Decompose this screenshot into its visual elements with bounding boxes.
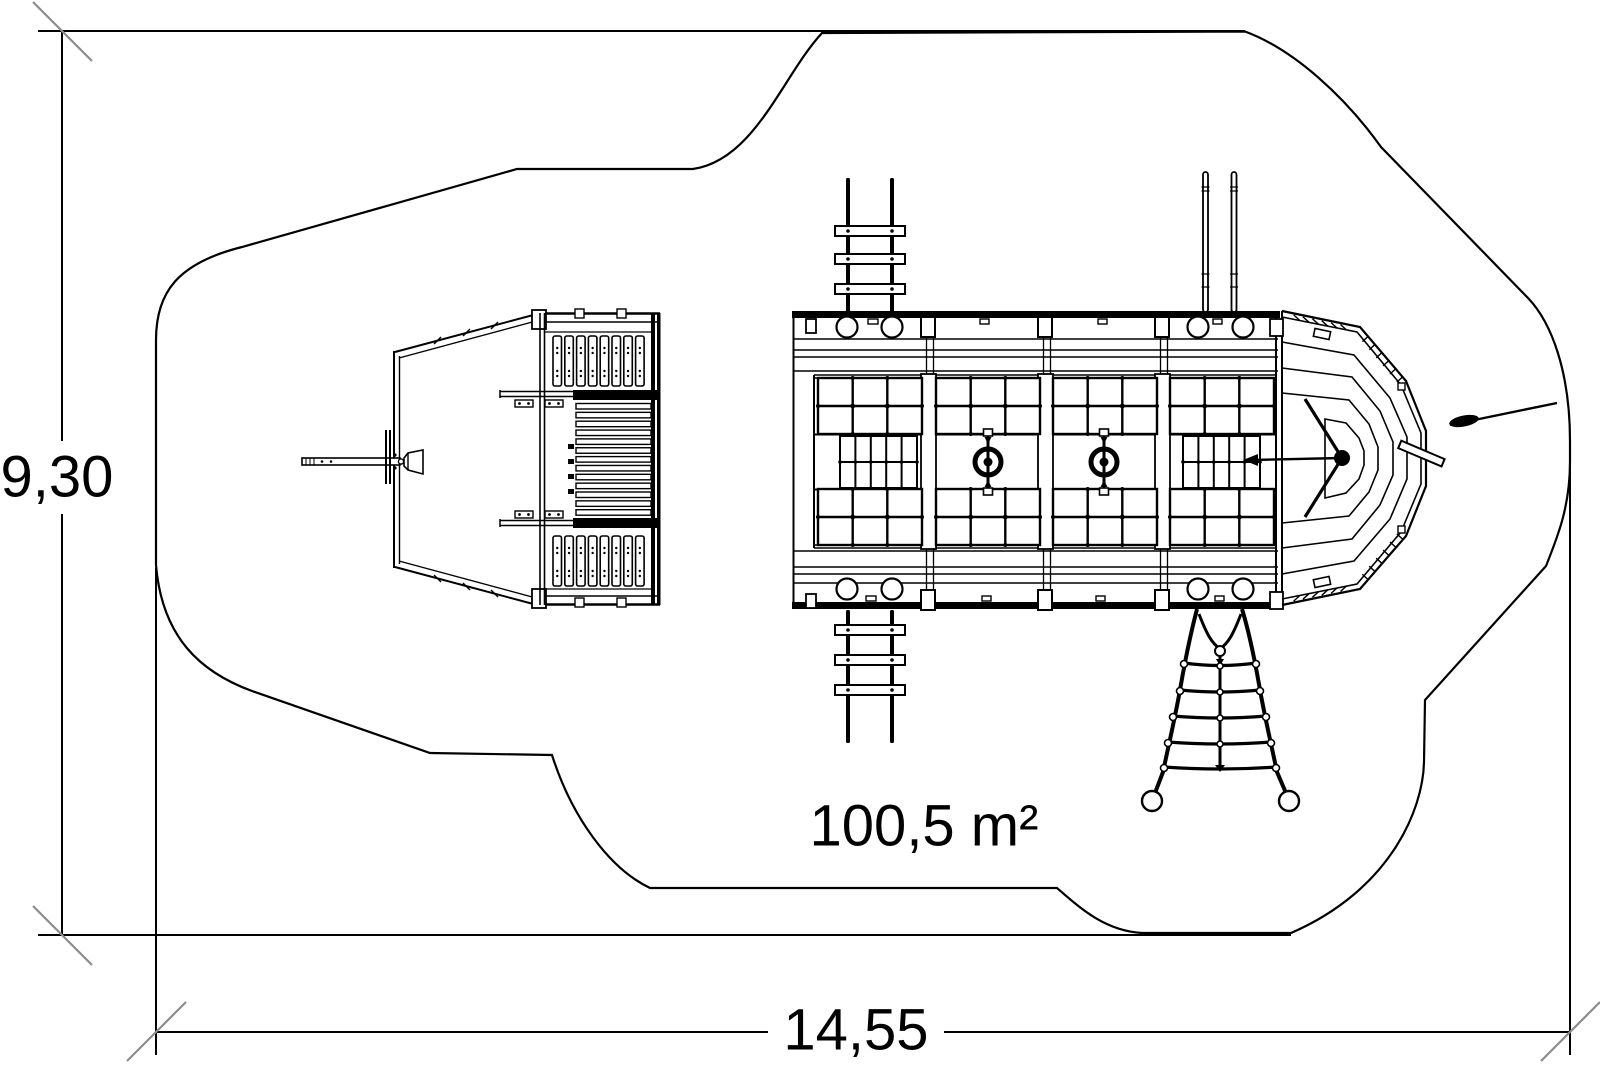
dimension-annotations: 9,30 14,55 100,5 m² (1, 2, 1600, 1063)
fore-deck (500, 390, 660, 528)
height-dimension-label: 9,30 (1, 445, 114, 510)
net-ground-anchor (1142, 791, 1162, 811)
slat-ramp-top (544, 332, 651, 386)
mast-pointer-line (1252, 458, 1342, 460)
stern-mast (1334, 450, 1350, 466)
ship-wheel-left (975, 429, 1001, 495)
bottom-rail (792, 602, 1280, 609)
ship-wheel-right (1091, 429, 1117, 495)
area-label: 100,5 m² (810, 794, 1039, 859)
width-dimension-label: 14,55 (783, 998, 928, 1063)
plan-drawing-canvas: 9,30 14,55 100,5 m² (0, 0, 1600, 1090)
dimension-ticks (33, 2, 1600, 1061)
net-ground-anchor (1279, 791, 1299, 811)
deck-net-grid (814, 374, 1276, 549)
rope-ladder-top (835, 178, 905, 313)
stern-section (1243, 311, 1557, 605)
wind-vane (1448, 403, 1557, 429)
rope-ladder-bottom (835, 610, 905, 743)
climbing-net (1142, 609, 1299, 811)
slat-ramp-bottom (544, 536, 651, 589)
main-ship-structure (792, 311, 1557, 610)
bow-platform-structure (302, 309, 661, 608)
site-plan-drawing: 9,30 14,55 100,5 m² (0, 0, 1600, 1090)
climbing-poles (1202, 172, 1239, 312)
bowsprit (302, 430, 423, 484)
brace-ticks (434, 322, 498, 597)
